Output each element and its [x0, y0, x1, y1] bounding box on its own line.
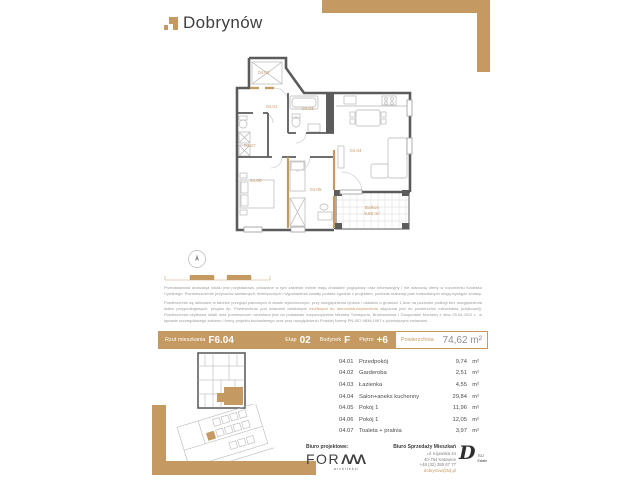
room-area: 2,51 [456, 370, 467, 376]
room-no: 04.04 [339, 394, 357, 400]
floor-value: +6 [377, 335, 388, 346]
room-list: 04.01 Przedpokój 9,74 m² 04.02 Garderoba… [339, 356, 479, 437]
north-compass-icon [186, 248, 208, 270]
room-area: 11,96 [453, 405, 467, 411]
room-name: Salon+aneks kuchenny [357, 394, 452, 400]
room-name: Garderoba [357, 370, 456, 376]
decor-bottom-corner-horizontal [152, 461, 316, 475]
room-no: 04.03 [339, 382, 357, 388]
tdj-name: TDJ [477, 454, 483, 458]
sales-office-title: Biuro Sprzedaży Mieszkań [386, 444, 456, 451]
room-unit: m² [467, 370, 479, 376]
room-unit: m² [467, 417, 479, 423]
room-name: Toaleta + pralnia [357, 428, 456, 434]
room-row: 04.01 Przedpokój 9,74 m² [339, 356, 479, 368]
label-04-05: 04.05 [310, 187, 322, 192]
highlighted-building [206, 431, 216, 441]
forma-logo-text: FOR [306, 451, 340, 467]
room-area: 9,74 [456, 359, 467, 365]
room-unit: m² [467, 382, 479, 388]
room-no: 04.01 [339, 359, 357, 365]
area-box: Powierzchnia 74,62 m² [395, 331, 488, 349]
room-name: Łazienka [357, 382, 456, 388]
building-label: Budynek [320, 337, 341, 343]
label-balcony: Balkon [365, 205, 379, 210]
sales-email: dobrynow@tdj.pl [386, 468, 456, 474]
room-no: 04.02 [339, 370, 357, 376]
forma-logo-subtitle: architekci [334, 467, 359, 471]
label-balcony-area: 8,80 m² [364, 211, 380, 216]
highlighted-unit [224, 387, 243, 405]
room-row: 04.04 Salon+aneks kuchenny 29,84 m² [339, 391, 479, 403]
brochure-page: Dobrynów [0, 0, 640, 480]
furniture [239, 62, 409, 226]
room-name: Przedpokój [357, 359, 456, 365]
label-04-01: 04.01 [266, 104, 278, 109]
decor-top-bar [322, 0, 490, 13]
floor-plan: 04.01 04.02 04.03 04.04 04.05 04.06 04.0… [228, 55, 414, 237]
room-unit: m² [467, 359, 479, 365]
floor-locator-map [197, 352, 247, 410]
label-04-06: 04.06 [250, 178, 262, 183]
info-bar-gold: Rzut mieszkania F6.04 Etap 02 Budynek F … [158, 331, 395, 349]
sales-office-block: Biuro Sprzedaży Mieszkań ul. Kijowska 44… [386, 444, 456, 474]
tdj-logo-icon: D [459, 444, 475, 463]
label-04-02: 04.02 [258, 70, 270, 75]
room-unit: m² [467, 428, 479, 434]
stage-label: Etap [285, 337, 296, 343]
brand-logo-icon [164, 16, 179, 32]
tdj-logo: D TDJ Estate [459, 444, 487, 463]
room-no: 04.05 [339, 405, 357, 411]
forma-logo-peaks-icon: ΛΛΛ [341, 451, 365, 467]
disclaimer-paragraph-2: Powierzchnie są obliczane w tabelce prze… [164, 300, 482, 324]
design-office-label: Biuro projektowe: [306, 444, 349, 450]
room-row: 04.07 Toaleta + pralnia 3,97 m² [339, 426, 479, 438]
building-value: F [344, 335, 350, 346]
room-unit: m² [467, 405, 479, 411]
disclaimer-paragraph-1: Przedstawiona aranżacja lokalu jest przy… [164, 285, 482, 297]
room-area: 4,55 [456, 382, 467, 388]
room-name: Pokój 1 [357, 417, 452, 423]
info-bar: Rzut mieszkania F6.04 Etap 02 Budynek F … [158, 331, 488, 349]
label-04-04: 04.04 [350, 148, 362, 153]
room-no: 04.06 [339, 417, 357, 423]
room-name: Pokój 1 [357, 405, 453, 411]
room-unit: m² [467, 394, 479, 400]
floor-label: Piętro [359, 337, 373, 343]
room-row: 04.02 Garderoba 2,51 m² [339, 368, 479, 380]
plan-label: Rzut mieszkania [165, 337, 205, 343]
area-value: 74,62 m² [443, 335, 482, 346]
tdj-logo-text: TDJ Estate [477, 454, 487, 463]
room-row: 04.05 Pokój 1 11,96 m² [339, 402, 479, 414]
stage-value: 02 [300, 335, 311, 346]
room-area: 12,05 [452, 417, 467, 423]
label-04-07: 04.07 [244, 143, 256, 148]
shaft [326, 93, 334, 133]
tdj-sub: Estate [477, 459, 487, 463]
room-row: 04.06 Pokój 1 12,05 m² [339, 414, 479, 426]
room-area: 3,97 [456, 428, 467, 434]
label-04-03: 04.03 [302, 106, 314, 111]
room-no: 04.07 [339, 428, 357, 434]
room-area: 29,84 [452, 394, 467, 400]
disclaimer-p2-highlight: możliwymi do demontażu/wyburzenia [309, 306, 378, 311]
room-row: 04.03 Łazienka 4,55 m² [339, 379, 479, 391]
brand-name: Dobrynów [183, 13, 263, 33]
area-label: Powierzchnia [401, 337, 434, 343]
forma-logo: FOR ΛΛΛ [306, 451, 365, 467]
scale-bar [164, 272, 272, 282]
decor-top-corner [477, 0, 490, 72]
plan-number: F6.04 [208, 335, 234, 346]
